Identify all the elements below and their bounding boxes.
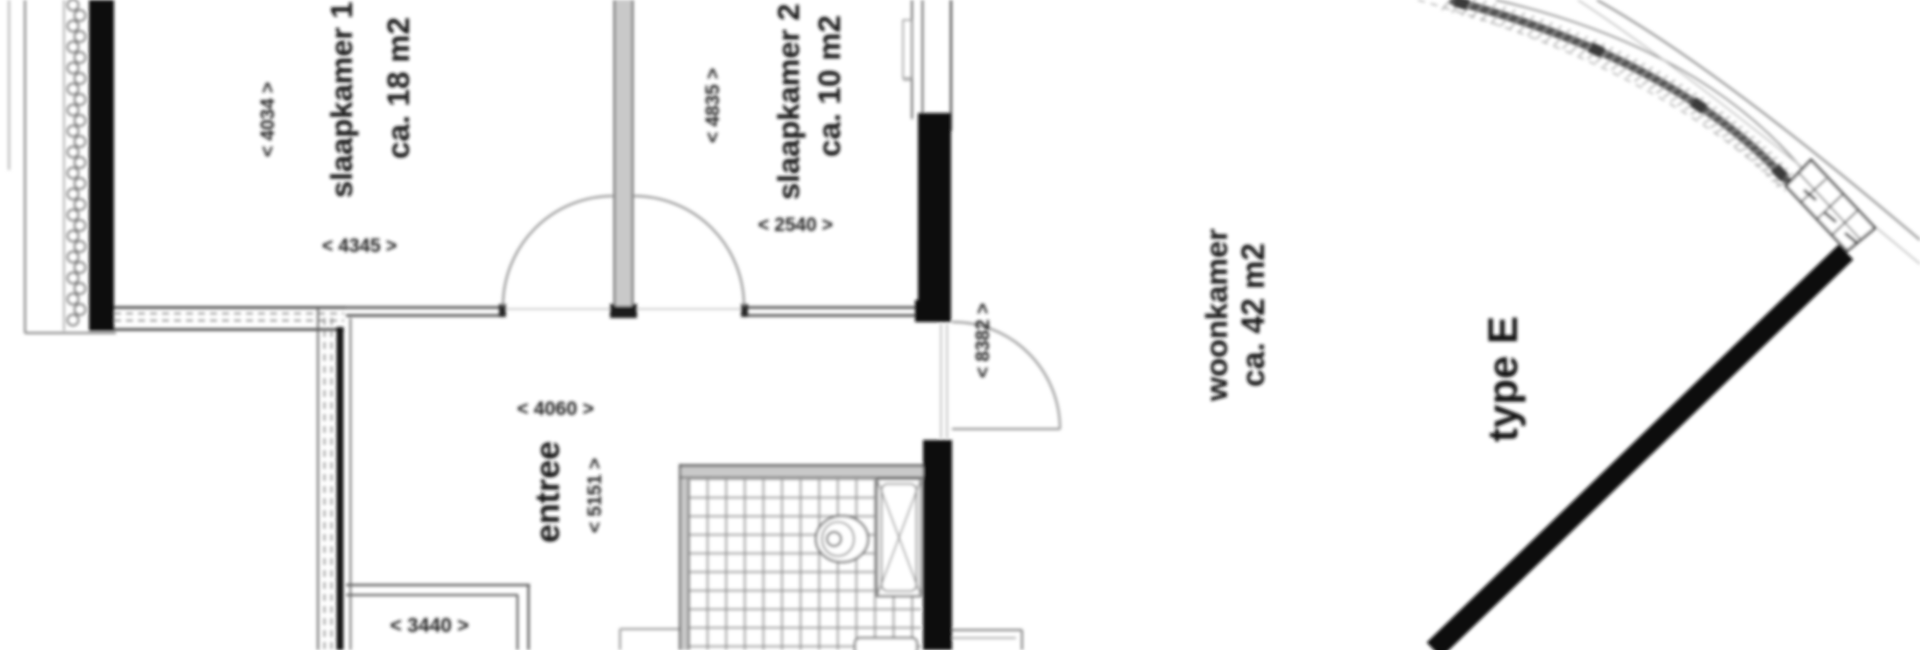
svg-text:< 3440 >: < 3440 >: [390, 615, 469, 637]
svg-text:< 8382 >: < 8382 >: [973, 303, 994, 378]
svg-text:slaapkamer 1: slaapkamer 1: [324, 2, 359, 198]
svg-text:type E: type E: [1479, 316, 1526, 442]
svg-text:< 2540 >: < 2540 >: [758, 215, 833, 236]
svg-text:woonkamer: woonkamer: [1199, 229, 1234, 402]
svg-text:< 5151 >: < 5151 >: [585, 458, 606, 533]
svg-text:ca. 18 m2: ca. 18 m2: [380, 17, 416, 159]
svg-text:ca. 42 m2: ca. 42 m2: [1235, 243, 1271, 387]
svg-text:ca. 10 m2: ca. 10 m2: [811, 15, 847, 157]
svg-text:< 4835 >: < 4835 >: [703, 68, 724, 143]
svg-text:entree: entree: [529, 441, 567, 543]
svg-text:< 4034 >: < 4034 >: [258, 82, 279, 157]
svg-text:slaapkamer 2: slaapkamer 2: [771, 4, 806, 200]
svg-text:< 4345 >: < 4345 >: [322, 236, 397, 257]
svg-text:< 4060 >: < 4060 >: [517, 398, 594, 420]
